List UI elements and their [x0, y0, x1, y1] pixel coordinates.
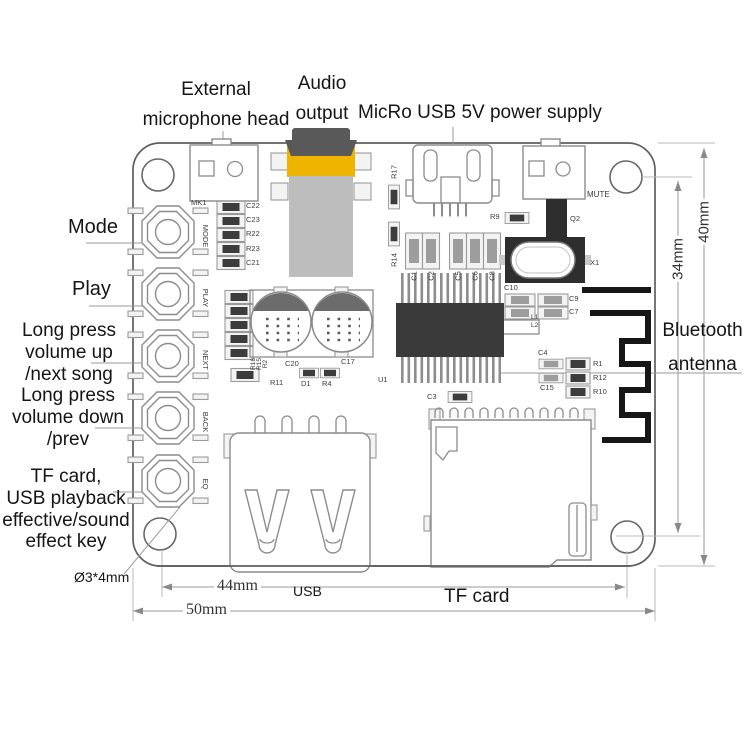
micro-usb-connector	[406, 145, 499, 210]
label-audio-output: Audio output	[283, 69, 361, 129]
label-volume-down: Long press volume down /prev	[0, 385, 136, 450]
label-effect-key: TF card, USB playback effective/sound ef…	[0, 466, 132, 553]
crystal-x1	[499, 237, 591, 283]
label-tf-card: TF card	[444, 586, 509, 608]
label-external-microphone: External microphone head	[141, 75, 291, 135]
mic-connector	[190, 139, 258, 201]
dim-50mm: 50mm	[183, 601, 230, 619]
label-play: Play	[72, 279, 111, 301]
label-external-microphone-line2: microphone head	[141, 105, 291, 135]
usb-port	[224, 416, 376, 572]
label-audio-output-line1: Audio	[283, 69, 361, 99]
dim-44mm: 44mm	[214, 577, 261, 595]
jack-body	[289, 176, 353, 277]
label-mount-hole-size: Ø3*4mm	[74, 567, 129, 589]
dim-34mm: 34mm	[670, 236, 687, 282]
dim-40mm: 40mm	[696, 199, 713, 245]
label-volume-up: Long press volume up /next song	[4, 320, 134, 385]
pcb-annotated-diagram: External microphone head Audio output Mi…	[0, 0, 750, 750]
tf-card-slot	[424, 408, 597, 567]
label-external-microphone-line1: External	[141, 75, 291, 105]
label-usb: USB	[293, 581, 322, 603]
label-bluetooth-antenna: Bluetooth antenna	[655, 314, 750, 382]
label-mode: Mode	[68, 217, 118, 239]
label-power-supply: MicRo USB 5V power supply	[358, 102, 602, 124]
label-audio-output-line2: output	[283, 99, 361, 129]
